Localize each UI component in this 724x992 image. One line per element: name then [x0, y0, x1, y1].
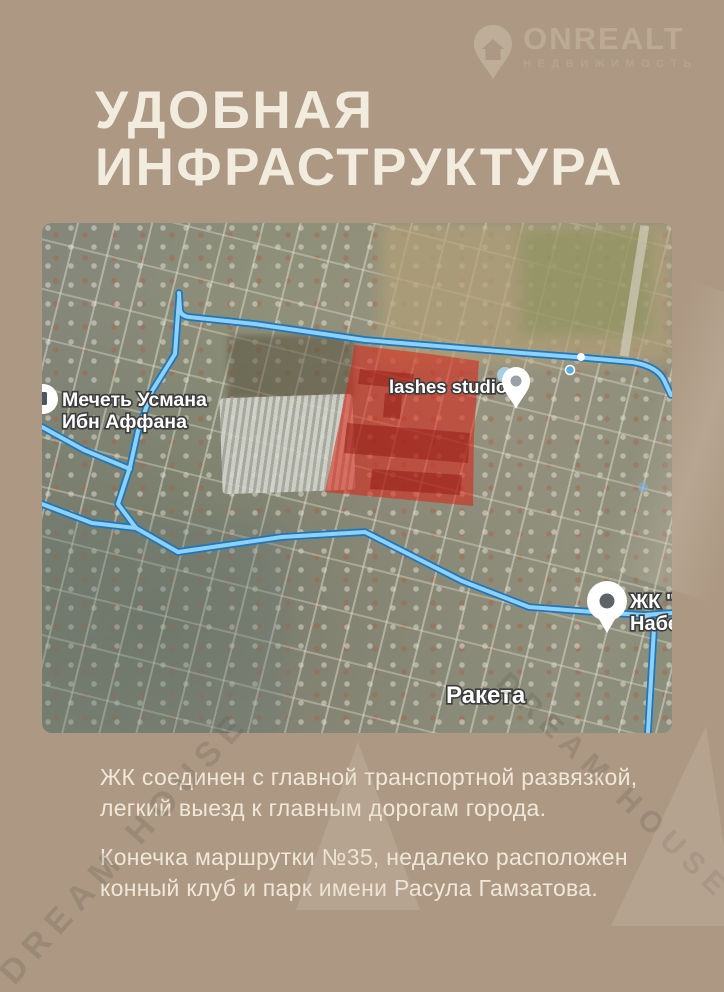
map-label-lashes: lashes studio — [389, 376, 507, 397]
paragraph-1-line-1: ЖК соединен с главной транспортной развя… — [100, 762, 637, 793]
body-paragraph-1: ЖК соединен с главной транспортной развя… — [100, 762, 637, 824]
watermark-chevron-right — [611, 726, 724, 926]
map-label-zhk-line2: Набер — [630, 613, 672, 635]
paragraph-2-line-1: Конечка маршрутки №35, недалеко располож… — [100, 842, 628, 873]
route-via-dot — [566, 366, 575, 375]
body-paragraph-2: Конечка маршрутки №35, недалеко располож… — [100, 842, 628, 904]
map-label-zhk-line1: ЖК "Д — [629, 591, 672, 613]
map-label-mosque-line1: Мечеть Усмана — [62, 389, 207, 411]
route-via-dot — [638, 482, 648, 492]
brand-text-block: ONREALT НЕДВИЖИМОСТЬ — [523, 24, 698, 70]
map-card: Мечеть Усмана Ибн Аффана lashes studio Ж… — [42, 223, 672, 733]
page-title: УДОБНАЯ ИНФРАСТРУКТУРА — [95, 82, 624, 196]
red-plot-polygon — [325, 345, 479, 506]
paragraph-1-line-2: легкий выезд к главным дорогам города. — [100, 793, 637, 824]
mosque-pin-icon — [42, 384, 58, 414]
brand-name: ONREALT — [523, 24, 698, 54]
map-label-raketa: Ракета — [446, 682, 526, 709]
promo-poster: { "brand": { "name": "ONREALT", "tagline… — [0, 0, 724, 910]
route-via-dot — [577, 353, 585, 361]
brand-logo: ONREALT НЕДВИЖИМОСТЬ — [473, 24, 698, 80]
location-pin-house-icon — [473, 24, 513, 80]
title-line-2: ИНФРАСТРУКТУРА — [95, 139, 624, 196]
paragraph-2-line-2: конный клуб и парк имени Расула Гамзатов… — [100, 873, 628, 904]
zhk-pin-icon — [587, 581, 627, 633]
map-overlay: Мечеть Усмана Ибн Аффана lashes studio Ж… — [42, 223, 672, 733]
map-label-mosque-line2: Ибн Аффана — [62, 411, 187, 433]
title-line-1: УДОБНАЯ — [95, 82, 624, 139]
brand-tagline: НЕДВИЖИМОСТЬ — [523, 58, 698, 70]
